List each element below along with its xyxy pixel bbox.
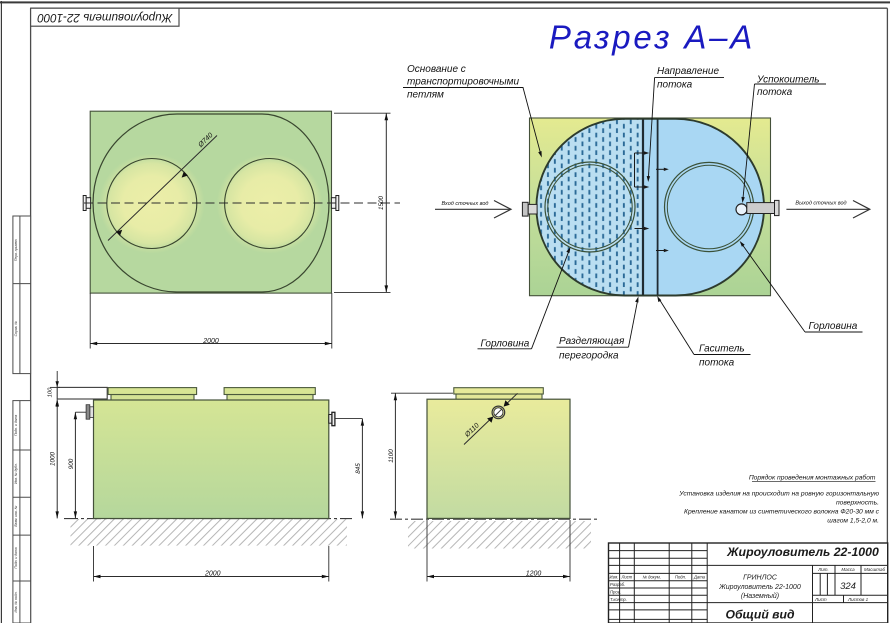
svg-text:Гаситель: Гаситель	[699, 344, 745, 355]
svg-text:петлям: петлям	[407, 90, 444, 101]
svg-text:Подп. и дата: Подп. и дата	[14, 547, 18, 568]
svg-text:поверхность.: поверхность.	[836, 500, 879, 507]
svg-text:Взам. инв. №: Взам. инв. №	[14, 505, 18, 526]
svg-text:Листов 1: Листов 1	[847, 597, 869, 602]
svg-text:Разрез А–А: Разрез А–А	[549, 19, 755, 56]
svg-text:Справ. №: Справ. №	[14, 321, 18, 337]
svg-text:Направление: Направление	[657, 66, 719, 77]
svg-text:2000: 2000	[202, 338, 219, 345]
svg-text:потока: потока	[757, 87, 793, 98]
svg-text:Перв. примен.: Перв. примен.	[14, 238, 18, 261]
svg-text:шагом 1,5-2,0 м.: шагом 1,5-2,0 м.	[827, 518, 879, 525]
svg-text:ГРИНЛОС: ГРИНЛОС	[743, 575, 778, 582]
svg-text:перегородка: перегородка	[559, 351, 619, 362]
svg-text:Изм.: Изм.	[610, 575, 619, 580]
svg-text:1500: 1500	[378, 196, 385, 211]
svg-text:Крепление канатом из синтетиче: Крепление канатом из синтетического воло…	[684, 509, 880, 516]
svg-text:1200: 1200	[526, 571, 542, 578]
svg-text:100: 100	[48, 387, 54, 397]
svg-text:Инв. № подл.: Инв. № подл.	[14, 591, 18, 612]
svg-text:Установка изделия на происходи: Установка изделия на происходит на ровну…	[678, 490, 879, 498]
svg-text:2000: 2000	[204, 570, 221, 577]
svg-text:потока: потока	[699, 358, 735, 369]
svg-text:1100: 1100	[388, 449, 395, 463]
svg-text:Разраб.: Разраб.	[610, 582, 625, 587]
svg-text:Горловина: Горловина	[809, 321, 858, 332]
svg-text:Порядок проведения монтажных р: Порядок проведения монтажных работ	[749, 474, 876, 482]
svg-text:Разделяющая: Разделяющая	[559, 336, 625, 347]
svg-text:Пров.: Пров.	[610, 589, 621, 594]
svg-text:Лит.: Лит.	[817, 567, 829, 572]
svg-text:Общий вид: Общий вид	[725, 608, 795, 622]
svg-text:(Наземный): (Наземный)	[741, 592, 779, 600]
svg-text:Жироуловитель 22-1000: Жироуловитель 22-1000	[37, 11, 173, 24]
svg-text:Подп.: Подп.	[675, 575, 686, 580]
svg-text:Вход сточных вод: Вход сточных вод	[442, 201, 489, 207]
svg-text:Дата: Дата	[693, 575, 706, 580]
svg-text:Жироуловитель 22-1000: Жироуловитель 22-1000	[718, 584, 801, 591]
svg-text:845: 845	[355, 463, 362, 474]
svg-text:Подп. и дата: Подп. и дата	[14, 415, 18, 436]
svg-text:900: 900	[68, 458, 75, 469]
svg-text:Лист: Лист	[814, 597, 827, 602]
svg-text:№ докум.: № докум.	[642, 575, 660, 580]
svg-text:транспортировочными: транспортировочными	[407, 77, 519, 88]
svg-text:Масштаб: Масштаб	[864, 567, 885, 572]
svg-text:Основание с: Основание с	[407, 64, 466, 75]
svg-text:Выход сточных вод: Выход сточных вод	[795, 201, 846, 207]
svg-text:Т.контр.: Т.контр.	[610, 597, 627, 602]
svg-text:1000: 1000	[50, 452, 57, 467]
svg-text:Лист: Лист	[621, 575, 633, 580]
svg-text:Горловина: Горловина	[481, 339, 530, 350]
svg-text:потока: потока	[657, 79, 693, 90]
svg-text:Масса: Масса	[841, 567, 855, 572]
svg-text:324: 324	[840, 581, 856, 592]
svg-text:Инв. № дубл.: Инв. № дубл.	[14, 463, 18, 484]
svg-text:Жироуловитель 22-1000: Жироуловитель 22-1000	[726, 545, 879, 559]
